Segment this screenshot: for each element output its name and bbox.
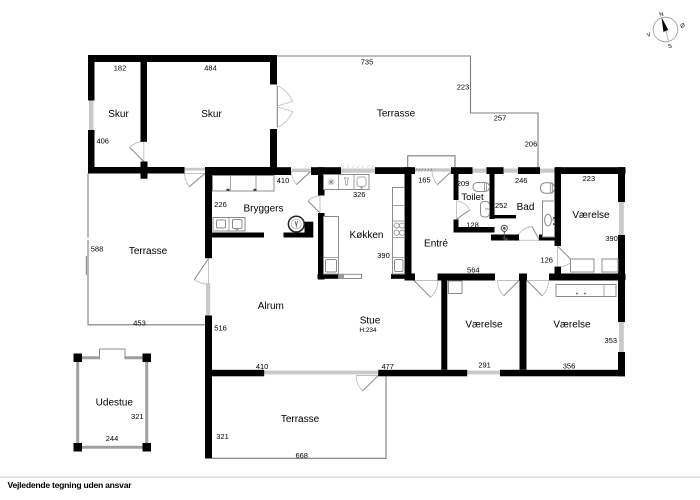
svg-text:291: 291 <box>478 361 491 370</box>
svg-text:516: 516 <box>214 324 227 333</box>
svg-text:209: 209 <box>457 179 470 188</box>
svg-text:410: 410 <box>277 176 290 185</box>
svg-text:Bryggers: Bryggers <box>243 204 283 215</box>
svg-text:Vejledende tegning uden ansvar: Vejledende tegning uden ansvar <box>8 480 133 490</box>
svg-text:223: 223 <box>583 174 596 183</box>
svg-text:223: 223 <box>457 83 470 92</box>
svg-text:588: 588 <box>91 245 104 254</box>
svg-text:Terrasse: Terrasse <box>281 414 320 425</box>
svg-text:Skur: Skur <box>108 109 129 120</box>
svg-text:477: 477 <box>381 362 394 371</box>
svg-text:Terrasse: Terrasse <box>129 246 168 257</box>
svg-text:Værelse: Værelse <box>553 320 591 331</box>
svg-text:353: 353 <box>605 336 618 345</box>
svg-text:Bad: Bad <box>517 202 535 213</box>
svg-text:Køkken: Køkken <box>350 230 384 241</box>
svg-text:Alrum: Alrum <box>258 301 284 312</box>
svg-text:564: 564 <box>467 265 480 274</box>
svg-text:390: 390 <box>605 234 618 243</box>
svg-text:Terrasse: Terrasse <box>377 109 416 120</box>
svg-text:Værelse: Værelse <box>572 210 610 221</box>
svg-text:252: 252 <box>495 201 508 210</box>
svg-text:Værelse: Værelse <box>465 320 503 331</box>
svg-text:244: 244 <box>106 434 119 443</box>
svg-text:H:234: H:234 <box>359 327 377 334</box>
svg-text:326: 326 <box>353 190 366 199</box>
svg-text:735: 735 <box>361 58 374 67</box>
svg-text:182: 182 <box>114 64 127 73</box>
svg-text:321: 321 <box>216 432 229 441</box>
svg-text:356: 356 <box>563 361 576 370</box>
svg-text:257: 257 <box>494 114 507 123</box>
svg-text:206: 206 <box>525 140 538 149</box>
svg-text:410: 410 <box>256 362 269 371</box>
svg-text:668: 668 <box>295 451 308 460</box>
svg-text:Stue: Stue <box>360 316 381 327</box>
svg-text:Skur: Skur <box>201 109 222 120</box>
svg-text:453: 453 <box>133 319 146 328</box>
svg-text:165: 165 <box>418 175 431 184</box>
svg-text:246: 246 <box>515 176 528 185</box>
svg-text:390: 390 <box>377 251 390 260</box>
svg-text:406: 406 <box>96 137 109 146</box>
svg-text:Entré: Entré <box>424 239 448 250</box>
svg-text:321: 321 <box>131 412 144 421</box>
svg-text:484: 484 <box>204 64 217 73</box>
svg-text:226: 226 <box>214 200 227 209</box>
svg-text:128: 128 <box>466 220 479 229</box>
svg-text:Toilet: Toilet <box>461 192 484 203</box>
svg-text:126: 126 <box>540 256 553 265</box>
svg-text:Udestue: Udestue <box>96 398 134 409</box>
